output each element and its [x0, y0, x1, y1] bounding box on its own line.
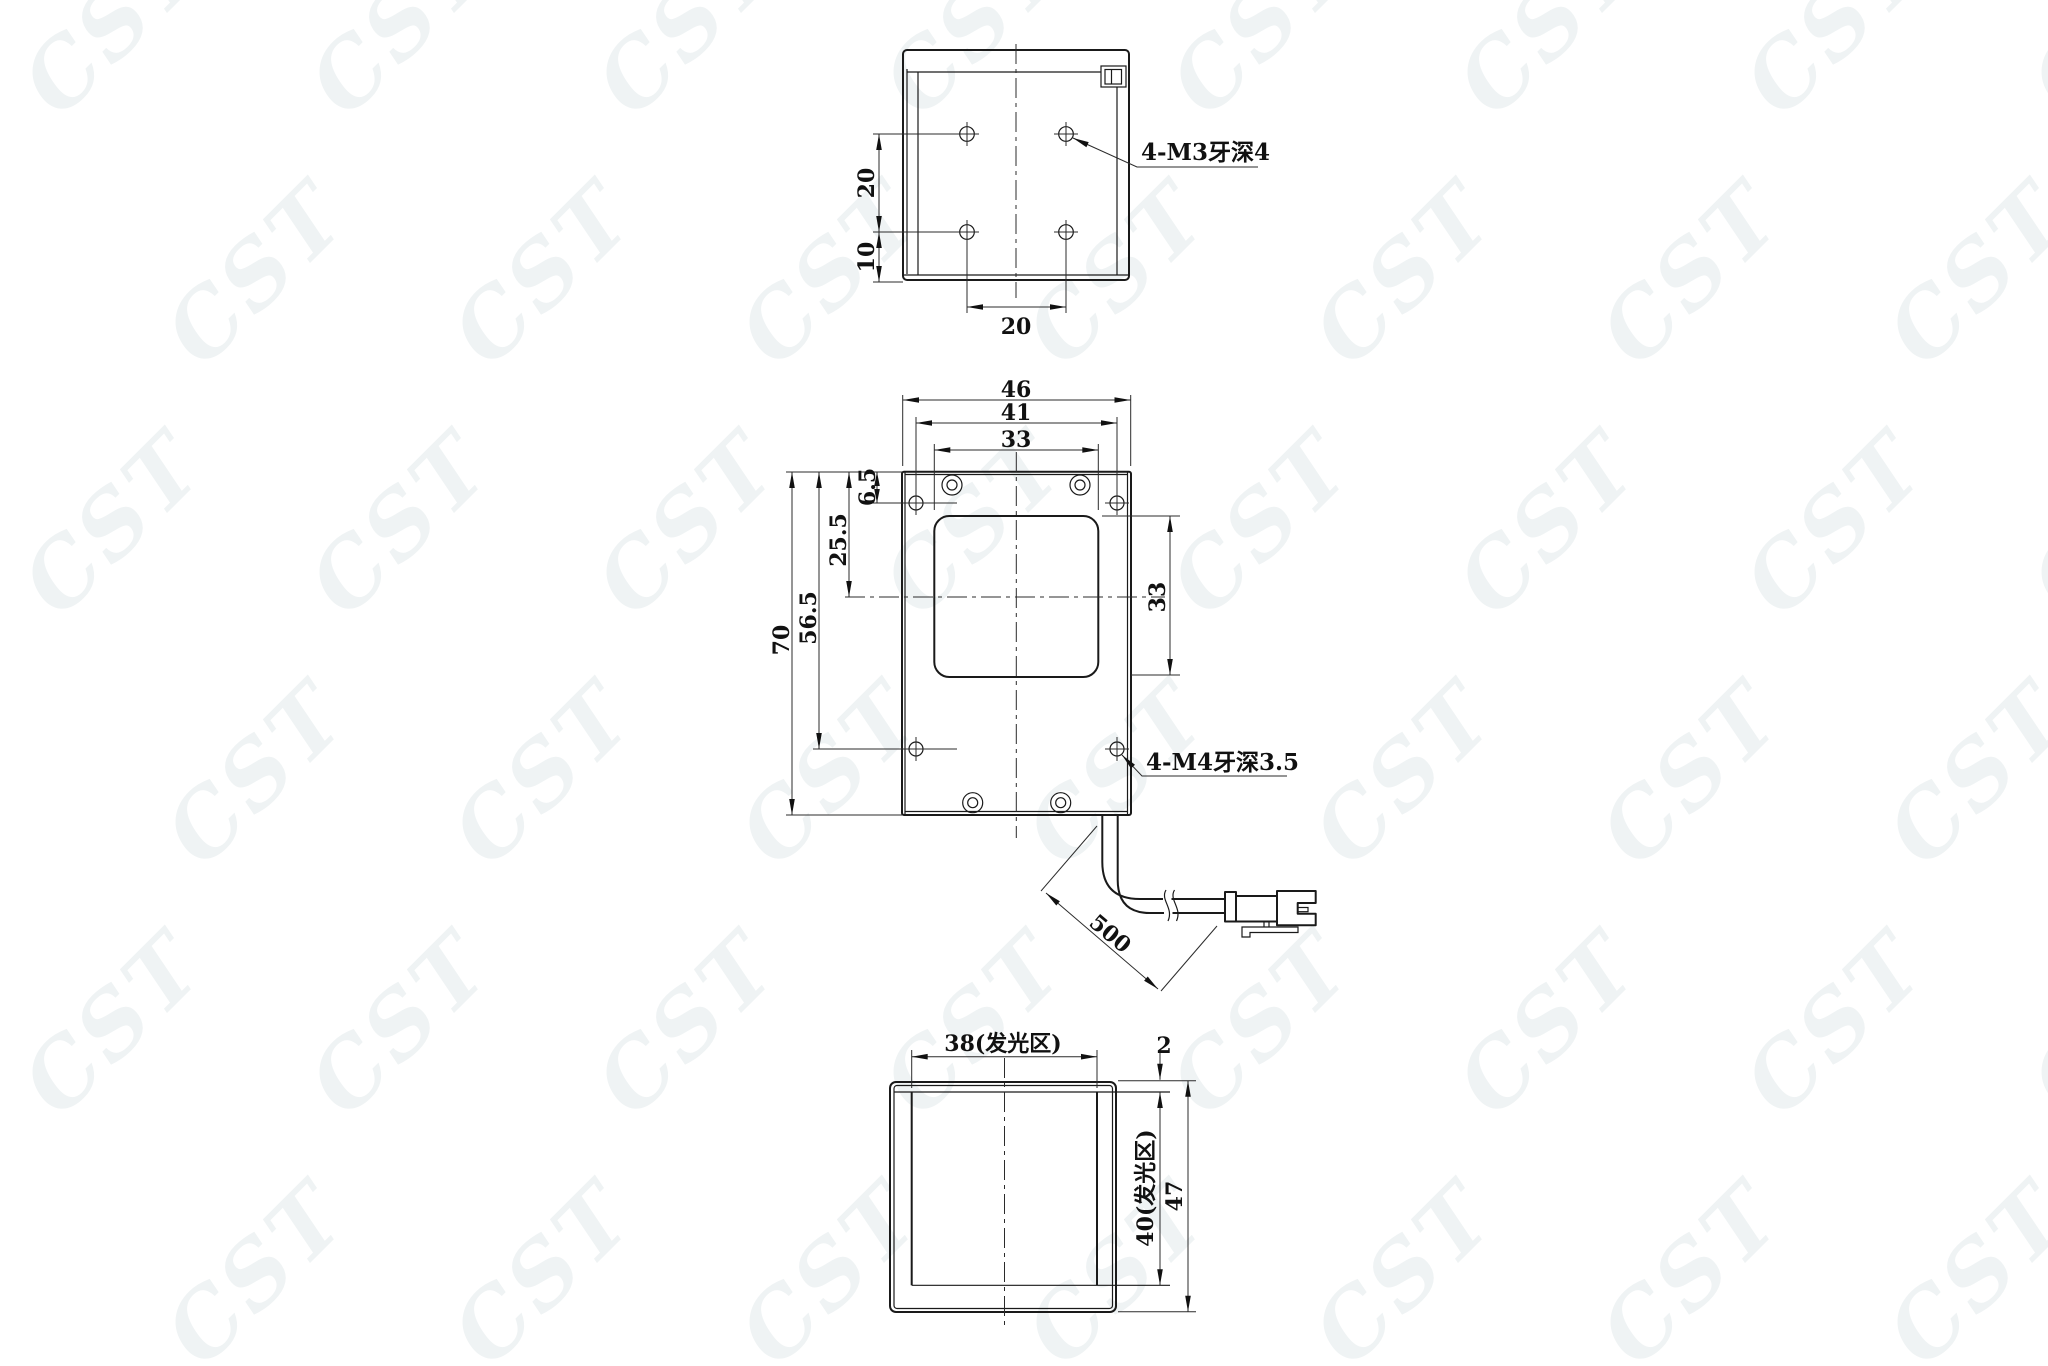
- dim-label-window-center: 25.5: [826, 513, 852, 567]
- dim-label-height: 70: [769, 625, 795, 656]
- watermark-text: CST: [718, 661, 942, 885]
- watermark-text: CST: [2010, 911, 2048, 1135]
- watermark-text: CST: [2010, 0, 2048, 135]
- arrowhead: [1157, 1092, 1163, 1108]
- counterbore-inner: [968, 798, 978, 808]
- dim-label-hole-spacing-v: 20: [854, 168, 880, 199]
- watermark-text: CST: [718, 1161, 942, 1366]
- watermark-text: CST: [144, 161, 368, 385]
- dim-label-edge-offset: 6.5: [855, 468, 881, 506]
- watermark-text: CST: [1, 911, 225, 1135]
- dim-label-hole-to-edge: 10: [854, 242, 880, 273]
- watermark-text: CST: [431, 161, 655, 385]
- watermark-text: CST: [288, 911, 512, 1135]
- watermark-text: CST: [1149, 411, 1373, 635]
- watermark-text: CST: [862, 911, 1086, 1135]
- anchor-inner: [1105, 70, 1122, 85]
- dim-label-cable-length: 500: [1084, 909, 1136, 958]
- watermark-text: CST: [575, 411, 799, 635]
- arrowhead: [916, 420, 932, 426]
- arrowhead: [967, 304, 983, 310]
- arrowhead: [1101, 420, 1117, 426]
- watermark-text: CST: [1149, 0, 1373, 135]
- watermark-text: CST: [1866, 661, 2048, 885]
- watermark-text: CST: [1723, 411, 1947, 635]
- front-view-right-dimension: 33: [1102, 516, 1180, 675]
- watermark-text: CST: [862, 411, 1086, 635]
- arrowhead: [1046, 893, 1060, 906]
- dim-label-hole-span-h: 41: [1001, 400, 1032, 426]
- dim-label-window-h: 33: [1145, 582, 1171, 613]
- arrowhead: [1144, 977, 1158, 990]
- watermark-text: CST: [1723, 911, 1947, 1135]
- arrowhead: [1073, 138, 1089, 147]
- watermark-text: CST: [288, 411, 512, 635]
- watermark-layer: CSTCSTCSTCSTCSTCSTCSTCSTCSTCSTCSTCSTCSTC…: [1, 0, 2048, 1366]
- arrowhead: [846, 472, 852, 488]
- arrowhead: [1115, 397, 1131, 403]
- watermark-text: CST: [1579, 161, 1803, 385]
- arrowhead: [816, 472, 822, 488]
- hole-crosshair: [1054, 122, 1078, 146]
- dim-label-hole-span-v: 56.5: [796, 591, 822, 645]
- cable-break-mark: [1164, 890, 1169, 921]
- watermark-text: CST: [1149, 911, 1373, 1135]
- watermark-text: CST: [1, 411, 225, 635]
- arrowhead: [934, 447, 950, 453]
- dim-label-window-w: 38(发光区): [944, 1031, 1061, 1057]
- watermark-text: CST: [1292, 1161, 1516, 1366]
- watermark-text: CST: [1579, 661, 1803, 885]
- drawing-canvas: CSTCSTCSTCSTCSTCSTCSTCSTCSTCSTCSTCSTCSTC…: [0, 0, 2048, 1366]
- m3-leader-label: 4-M3牙深4: [1141, 139, 1270, 166]
- arrowhead: [876, 134, 882, 150]
- dim-label-window-h: 40(发光区): [1133, 1129, 1159, 1246]
- hole-crosshair: [955, 122, 979, 146]
- m4-leader-label: 4-M4牙深3.5: [1146, 749, 1299, 776]
- watermark-text: CST: [1579, 1161, 1803, 1366]
- dim-label-bezel-gap: 2: [1156, 1033, 1171, 1059]
- arrowhead: [1082, 447, 1098, 453]
- dim-label-window-w: 33: [1001, 427, 1032, 453]
- connector-pin: [1298, 908, 1308, 912]
- watermark-text: CST: [1866, 161, 2048, 385]
- watermark-text: CST: [1292, 161, 1516, 385]
- watermark-text: CST: [144, 1161, 368, 1366]
- watermark-text: CST: [431, 1161, 655, 1366]
- connector-ferrule: [1225, 892, 1236, 922]
- watermark-text: CST: [1, 0, 225, 135]
- arrowhead: [1081, 1054, 1097, 1060]
- watermark-text: CST: [1866, 1161, 2048, 1366]
- arrowhead: [1167, 659, 1173, 675]
- arrowhead: [903, 397, 919, 403]
- watermark-text: CST: [718, 161, 942, 385]
- m4-leader: 4-M4牙深3.5: [1122, 749, 1299, 776]
- watermark-text: CST: [1436, 911, 1660, 1135]
- watermark-text: CST: [1292, 661, 1516, 885]
- m3-leader: 4-M3牙深4: [1073, 138, 1270, 167]
- watermark-text: CST: [1436, 0, 1660, 135]
- dim-label-hole-spacing-h: 20: [1001, 314, 1032, 340]
- watermark-text: CST: [431, 661, 655, 885]
- cable-anchor-detail: [1101, 66, 1126, 87]
- watermark-text: CST: [2010, 411, 2048, 635]
- watermark-text: CST: [862, 0, 1086, 135]
- watermark-text: CST: [144, 661, 368, 885]
- arrowhead: [846, 581, 852, 597]
- watermark-text: CST: [1436, 411, 1660, 635]
- connector-body: [1236, 896, 1277, 922]
- watermark-text: CST: [1005, 1161, 1229, 1366]
- watermark-text: CST: [575, 911, 799, 1135]
- cable-break-mark: [1173, 890, 1178, 921]
- watermark-text: CST: [1723, 0, 1947, 135]
- counterbore-outer: [963, 793, 983, 813]
- arrowhead: [1167, 516, 1173, 532]
- technical-drawing: CSTCSTCSTCSTCSTCSTCSTCSTCSTCSTCSTCSTCSTC…: [0, 0, 2048, 1366]
- arrowhead: [1185, 1296, 1191, 1312]
- watermark-text: CST: [575, 0, 799, 135]
- dim-label-height: 47: [1162, 1181, 1188, 1212]
- watermark-text: CST: [288, 0, 512, 135]
- extension-line: [1161, 926, 1217, 991]
